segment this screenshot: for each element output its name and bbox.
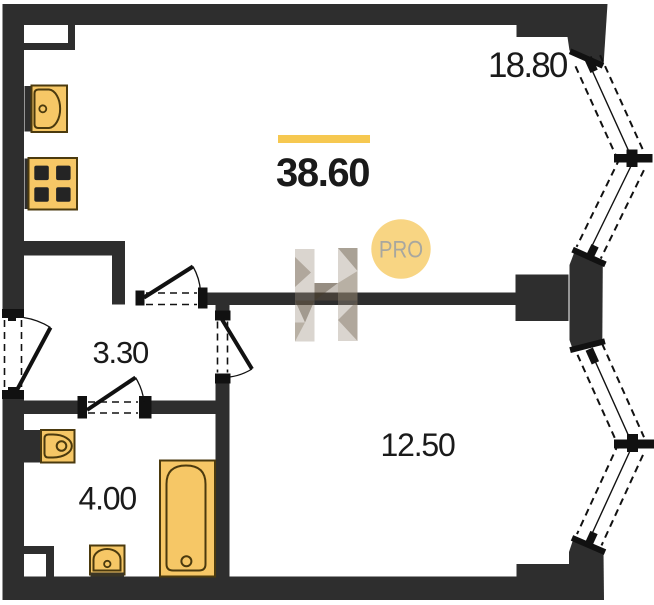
svg-text:18.80: 18.80 [488,46,568,85]
svg-text:4.00: 4.00 [79,481,137,517]
svg-text:3.30: 3.30 [93,335,149,370]
svg-text:12.50: 12.50 [381,427,455,463]
svg-text:38.60: 38.60 [276,151,369,195]
svg-text:PRO: PRO [379,236,423,263]
